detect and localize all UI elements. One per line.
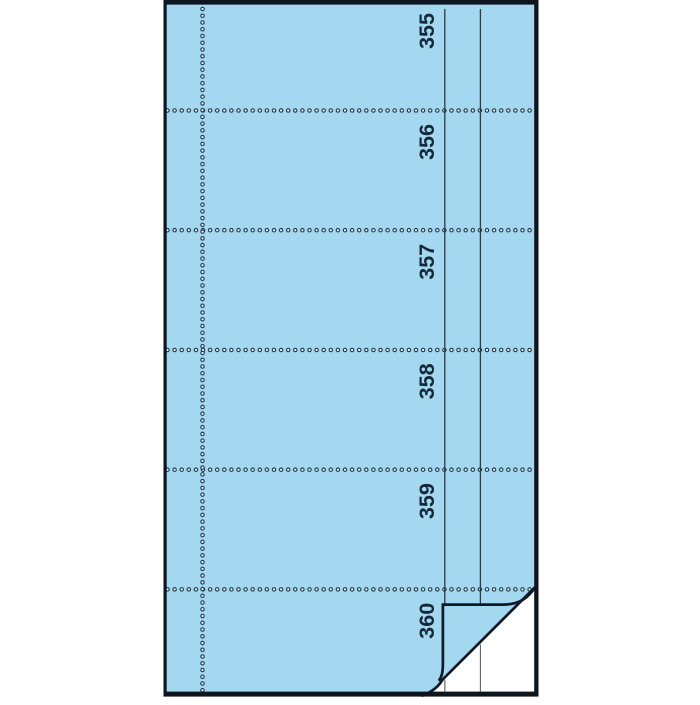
svg-text:355: 355	[414, 13, 439, 49]
svg-text:359: 359	[414, 483, 439, 519]
svg-text:356: 356	[414, 124, 439, 160]
svg-text:360: 360	[414, 603, 439, 639]
svg-text:357: 357	[414, 244, 439, 280]
svg-text:358: 358	[414, 363, 439, 399]
